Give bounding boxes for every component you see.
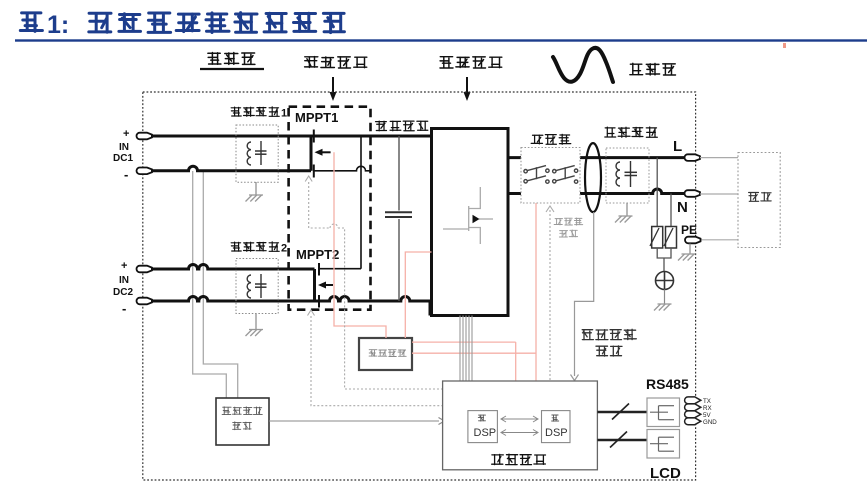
svg-text:1: 1 xyxy=(281,108,287,120)
svg-text:1:: 1: xyxy=(47,11,69,39)
svg-text:MPPT2: MPPT2 xyxy=(296,247,339,262)
svg-text:L: L xyxy=(673,138,682,155)
svg-text:DSP: DSP xyxy=(474,427,497,439)
svg-text:IN: IN xyxy=(119,142,129,153)
svg-text:TX: TX xyxy=(703,398,711,405)
svg-text:2: 2 xyxy=(281,243,287,255)
svg-text:5V: 5V xyxy=(703,412,711,419)
svg-text:DSP: DSP xyxy=(545,427,568,439)
svg-text:N: N xyxy=(677,199,688,216)
svg-text:-: - xyxy=(124,167,128,182)
svg-text:LCD: LCD xyxy=(650,465,681,482)
svg-text:+: + xyxy=(123,128,129,140)
svg-text:DC1: DC1 xyxy=(113,153,133,164)
svg-text:IN: IN xyxy=(119,275,129,286)
svg-text:MPPT1: MPPT1 xyxy=(295,110,338,125)
svg-text:GND: GND xyxy=(703,419,717,426)
svg-text:+: + xyxy=(121,260,127,272)
svg-text:DC2: DC2 xyxy=(113,287,133,298)
svg-text:RS485: RS485 xyxy=(646,376,689,392)
svg-text:-: - xyxy=(122,301,126,316)
svg-text:PE: PE xyxy=(681,223,697,237)
svg-text:RX: RX xyxy=(703,405,712,412)
